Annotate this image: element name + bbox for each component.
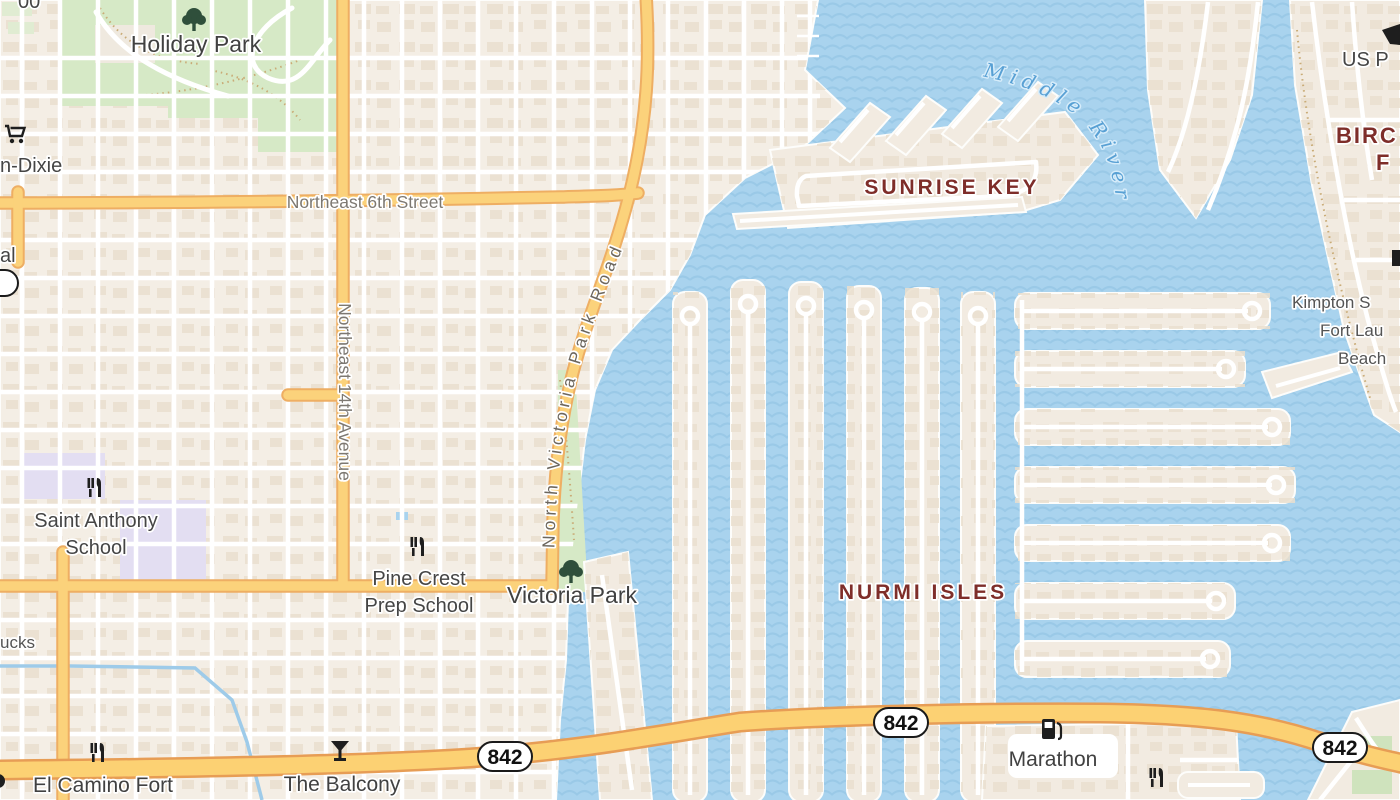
poi-label-kimpton-2[interactable]: Fort Lau <box>1320 321 1383 340</box>
poi-icon-clipped-right <box>1392 250 1400 266</box>
street-label-ne-6th: Northeast 6th Street <box>287 192 444 212</box>
route-shield-label: 842 <box>487 746 522 769</box>
poi-label-saint-anthony-2[interactable]: School <box>65 537 126 559</box>
area-label-birch-line1: BIRC <box>1336 123 1398 148</box>
area-label-nurmi-isles: NURMI ISLES <box>839 581 1007 604</box>
poi-label-pine-crest-1[interactable]: Pine Crest <box>372 568 466 590</box>
area-label-sunrise-key: SUNRISE KEY <box>864 176 1039 199</box>
poi-label-pine-crest-2[interactable]: Prep School <box>365 595 474 617</box>
poi-label-saint-anthony-1[interactable]: Saint Anthony <box>34 510 157 532</box>
route-shield-label: 842 <box>883 712 918 735</box>
poi-label-el-camino[interactable]: El Camino Fort <box>33 774 173 797</box>
poi-label-partial-starbucks[interactable]: ucks <box>0 633 35 652</box>
park-label-holiday[interactable]: Holiday Park <box>131 31 262 57</box>
route-shield-842-east: 842 <box>1313 733 1367 762</box>
poi-label-partial-al[interactable]: al <box>0 245 16 267</box>
route-shield-842-west: 842 <box>478 742 532 771</box>
poi-label-marathon[interactable]: Marathon <box>1009 748 1098 771</box>
poi-label-partial-top: 00 <box>18 0 40 13</box>
area-label-birch-line2: F <box>1376 150 1391 175</box>
poi-label-the-balcony[interactable]: The Balcony <box>284 773 401 796</box>
poi-label-kimpton-3[interactable]: Beach <box>1338 349 1386 368</box>
poi-label-winn-dixie[interactable]: n-Dixie <box>0 155 62 177</box>
street-label-ne-14th: Northeast 14th Avenue <box>335 303 355 481</box>
route-shield-842-center: 842 <box>874 708 928 737</box>
park-label-victoria[interactable]: Victoria Park <box>507 582 637 608</box>
poi-label-kimpton-1[interactable]: Kimpton S <box>1292 293 1370 312</box>
poi-label-us-post[interactable]: US P <box>1342 49 1389 71</box>
route-shield-label: 842 <box>1322 737 1357 760</box>
map-canvas[interactable]: 842 842 842 <box>0 0 1400 800</box>
route-shield-clipped-left <box>0 270 18 296</box>
